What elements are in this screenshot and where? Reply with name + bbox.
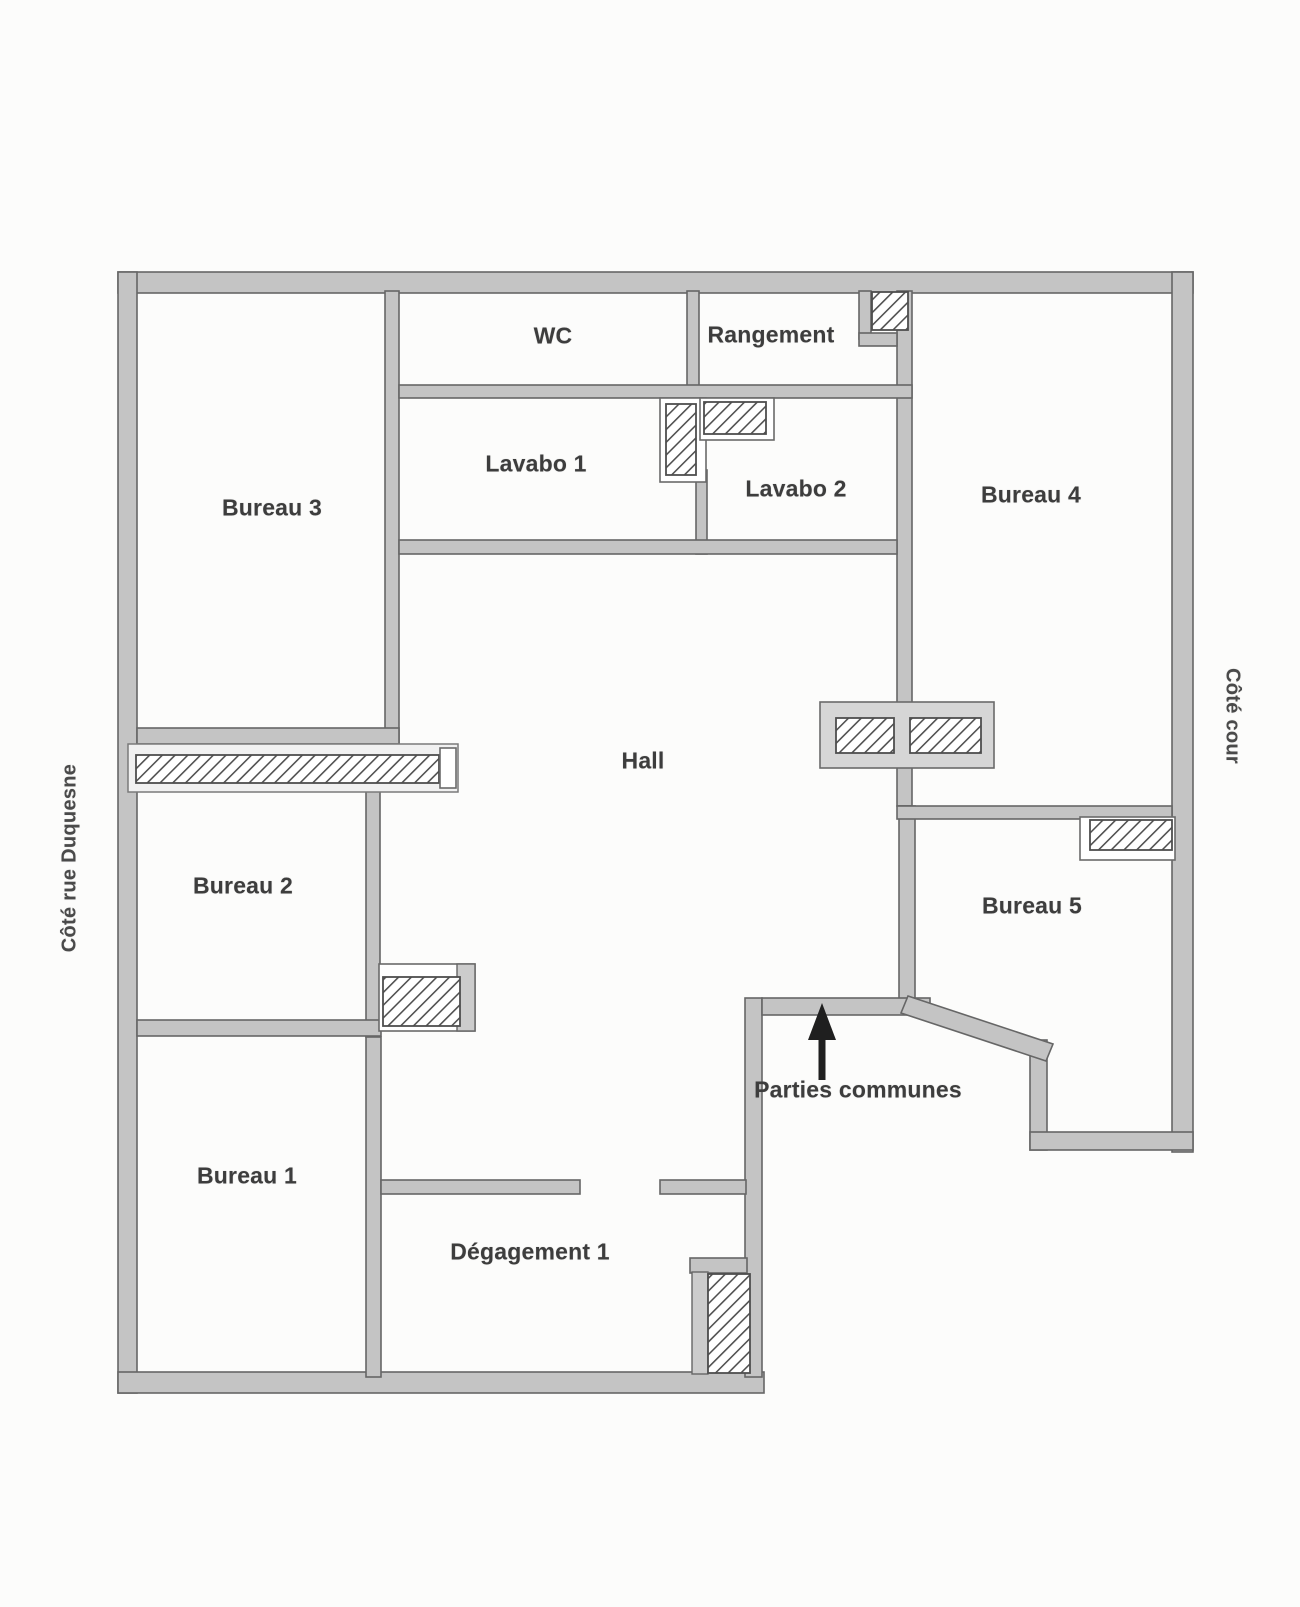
- door-lavabo-hatch-v: [666, 404, 696, 475]
- wall-diagonal: [901, 996, 1053, 1061]
- wall-degagement-top-left: [381, 1180, 580, 1194]
- double-door-hatch-left: [836, 718, 894, 753]
- door-degagement-jamb: [692, 1272, 708, 1374]
- wall-bureau2-right: [366, 791, 380, 1037]
- wall-bureau3-right: [385, 291, 399, 746]
- room-label-bureau-5: Bureau 5: [982, 893, 1082, 920]
- wall-outer-left: [118, 272, 137, 1393]
- door-degagement-stub: [690, 1258, 747, 1273]
- wall-bureau2-bottom: [137, 1020, 381, 1036]
- wall-wc-bottom: [399, 385, 912, 398]
- room-label-hall: Hall: [622, 748, 665, 775]
- wall-wc-rangement: [687, 291, 699, 395]
- annotation-cote-rue-duquesne: Côté rue Duquesne: [59, 764, 82, 952]
- floor-plan-drawing: [0, 0, 1300, 1607]
- wall-bureau3-bottom: [137, 728, 399, 744]
- wall-outer-right: [1172, 272, 1193, 1152]
- room-label-bureau-4: Bureau 4: [981, 482, 1081, 509]
- room-label-lavabo-1: Lavabo 1: [485, 451, 586, 478]
- wall-bureau1-right: [366, 1037, 381, 1377]
- door-bureau2-hatch: [383, 977, 460, 1026]
- floor-plan: Bureau 3 WC Rangement Lavabo 1 Lavabo 2 …: [0, 0, 1300, 1607]
- double-door-hatch-right: [910, 718, 981, 753]
- wall-rangement-notch-v: [859, 291, 871, 339]
- wall-outer-top: [118, 272, 1193, 293]
- door-lavabo-hatch-h: [704, 402, 766, 434]
- partition-bureau3-hatch: [136, 755, 439, 783]
- room-label-bureau-2: Bureau 2: [193, 873, 293, 900]
- room-label-degagement-1: Dégagement 1: [450, 1239, 610, 1266]
- wall-degagement-top-right: [660, 1180, 746, 1194]
- wall-outer-bottom: [118, 1372, 764, 1393]
- room-label-lavabo-2: Lavabo 2: [745, 476, 846, 503]
- room-label-bureau-1: Bureau 1: [197, 1163, 297, 1190]
- door-bureau5-hatch: [1090, 820, 1172, 850]
- partition-bureau3-jamb: [440, 748, 456, 788]
- annotation-cote-cour: Côté cour: [1221, 668, 1244, 764]
- wall-bureau5-bottom: [1030, 1132, 1193, 1150]
- annotation-parties-communes: Parties communes: [754, 1077, 962, 1104]
- room-label-wc: WC: [534, 323, 573, 350]
- wall-rangement-notch-h: [859, 333, 897, 346]
- room-label-bureau-3: Bureau 3: [222, 495, 322, 522]
- door-degagement-hatch: [708, 1274, 750, 1373]
- wall-bureau5-left: [899, 806, 915, 1010]
- room-label-rangement: Rangement: [707, 322, 834, 349]
- wall-lavabo-bottom: [399, 540, 897, 554]
- door-rangement-hatch: [872, 292, 908, 330]
